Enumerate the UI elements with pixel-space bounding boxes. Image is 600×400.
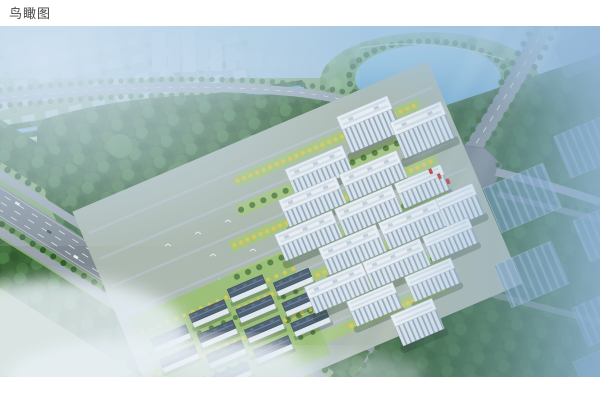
page-title: 鸟瞰图 xyxy=(9,6,51,22)
aerial-render-svg xyxy=(0,26,600,377)
aerial-render-image xyxy=(0,26,600,377)
fog-overlay xyxy=(0,26,600,377)
